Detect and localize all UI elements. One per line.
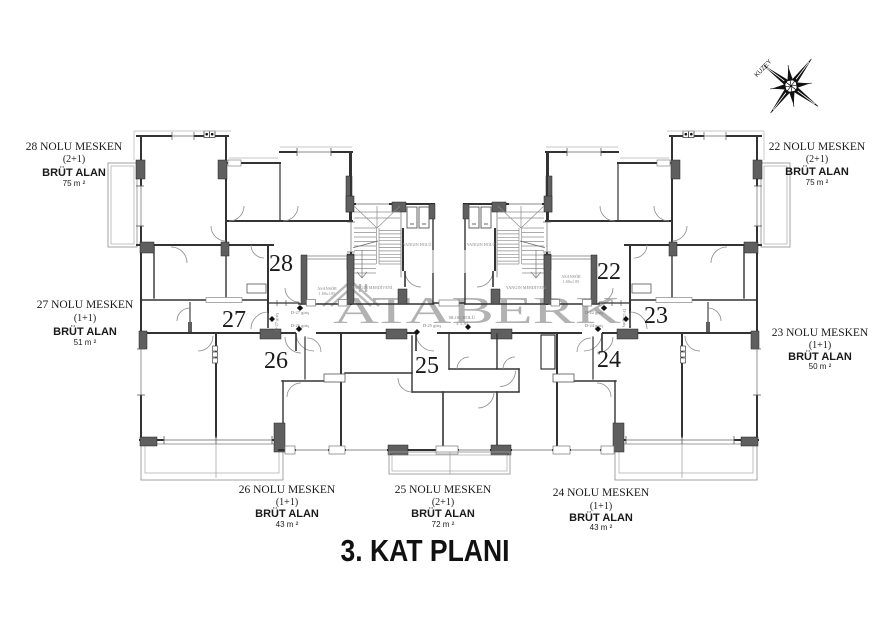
- svg-text:75 m ²: 75 m ²: [63, 179, 86, 188]
- svg-text:D-25 giriş: D-25 giriş: [423, 323, 442, 328]
- svg-text:27 NOLU MESKEN: 27 NOLU MESKEN: [37, 299, 134, 311]
- svg-text:1.60x1.85: 1.60x1.85: [319, 291, 336, 296]
- svg-text:72 m ²: 72 m ²: [432, 520, 455, 529]
- svg-text:26: 26: [264, 348, 288, 374]
- svg-text:1.60x1.85: 1.60x1.85: [563, 279, 580, 284]
- svg-text:25: 25: [415, 353, 439, 379]
- svg-text:(2+1): (2+1): [432, 497, 454, 508]
- svg-text:YANGIN HOLÜ: YANGIN HOLÜ: [467, 242, 496, 247]
- svg-text:BRÜT ALAN: BRÜT ALAN: [42, 166, 106, 179]
- svg-text:YANGIN MERDİVENİ: YANGIN MERDİVENİ: [352, 285, 393, 290]
- svg-text:D-27 giriş: D-27 giriş: [274, 313, 279, 332]
- svg-text:43 m ²: 43 m ²: [590, 523, 613, 532]
- svg-text:22: 22: [597, 259, 621, 285]
- svg-text:± 1.30: ± 1.30: [456, 321, 468, 326]
- svg-text:3. KAT PLANI: 3. KAT PLANI: [341, 533, 510, 568]
- svg-text:(1+1): (1+1): [74, 313, 96, 324]
- svg-text:BLOK HOLÜ: BLOK HOLÜ: [449, 315, 476, 320]
- svg-text:23 NOLU MESKEN: 23 NOLU MESKEN: [772, 327, 869, 339]
- svg-text:BRÜT ALAN: BRÜT ALAN: [255, 507, 319, 520]
- svg-text:28 NOLU MESKEN: 28 NOLU MESKEN: [26, 141, 123, 153]
- svg-text:(2+1): (2+1): [63, 154, 85, 165]
- svg-text:YANGIN HOLÜ: YANGIN HOLÜ: [403, 242, 432, 247]
- svg-text:50 m ²: 50 m ²: [809, 362, 832, 371]
- svg-text:26 NOLU MESKEN: 26 NOLU MESKEN: [239, 484, 336, 496]
- svg-text:24 NOLU MESKEN: 24 NOLU MESKEN: [553, 487, 650, 499]
- svg-text:D-22 giriş: D-22 giriş: [585, 310, 604, 315]
- svg-text:75 m ²: 75 m ²: [806, 178, 829, 187]
- svg-text:43 m ²: 43 m ²: [276, 520, 299, 529]
- svg-text:(2+1): (2+1): [806, 154, 828, 165]
- svg-text:YANGIN MERDİVENİ: YANGIN MERDİVENİ: [506, 285, 547, 290]
- svg-text:27: 27: [222, 307, 246, 333]
- svg-text:BRÜT ALAN: BRÜT ALAN: [785, 165, 849, 178]
- svg-text:(1+1): (1+1): [590, 501, 612, 512]
- svg-text:28: 28: [269, 251, 293, 277]
- svg-text:23: 23: [644, 303, 668, 329]
- svg-text:22 NOLU MESKEN: 22 NOLU MESKEN: [769, 141, 866, 153]
- svg-text:(1+1): (1+1): [809, 340, 831, 351]
- svg-text:D-24 giriş: D-24 giriş: [585, 323, 604, 328]
- svg-text:(1+1): (1+1): [276, 497, 298, 508]
- svg-text:BRÜT ALAN: BRÜT ALAN: [53, 325, 117, 338]
- svg-text:25 NOLU MESKEN: 25 NOLU MESKEN: [395, 484, 492, 496]
- svg-text:BRÜT ALAN: BRÜT ALAN: [411, 507, 475, 520]
- svg-text:51 m ²: 51 m ²: [74, 338, 97, 347]
- svg-text:24: 24: [597, 347, 621, 373]
- svg-text:ATABERK: ATABERK: [333, 290, 622, 332]
